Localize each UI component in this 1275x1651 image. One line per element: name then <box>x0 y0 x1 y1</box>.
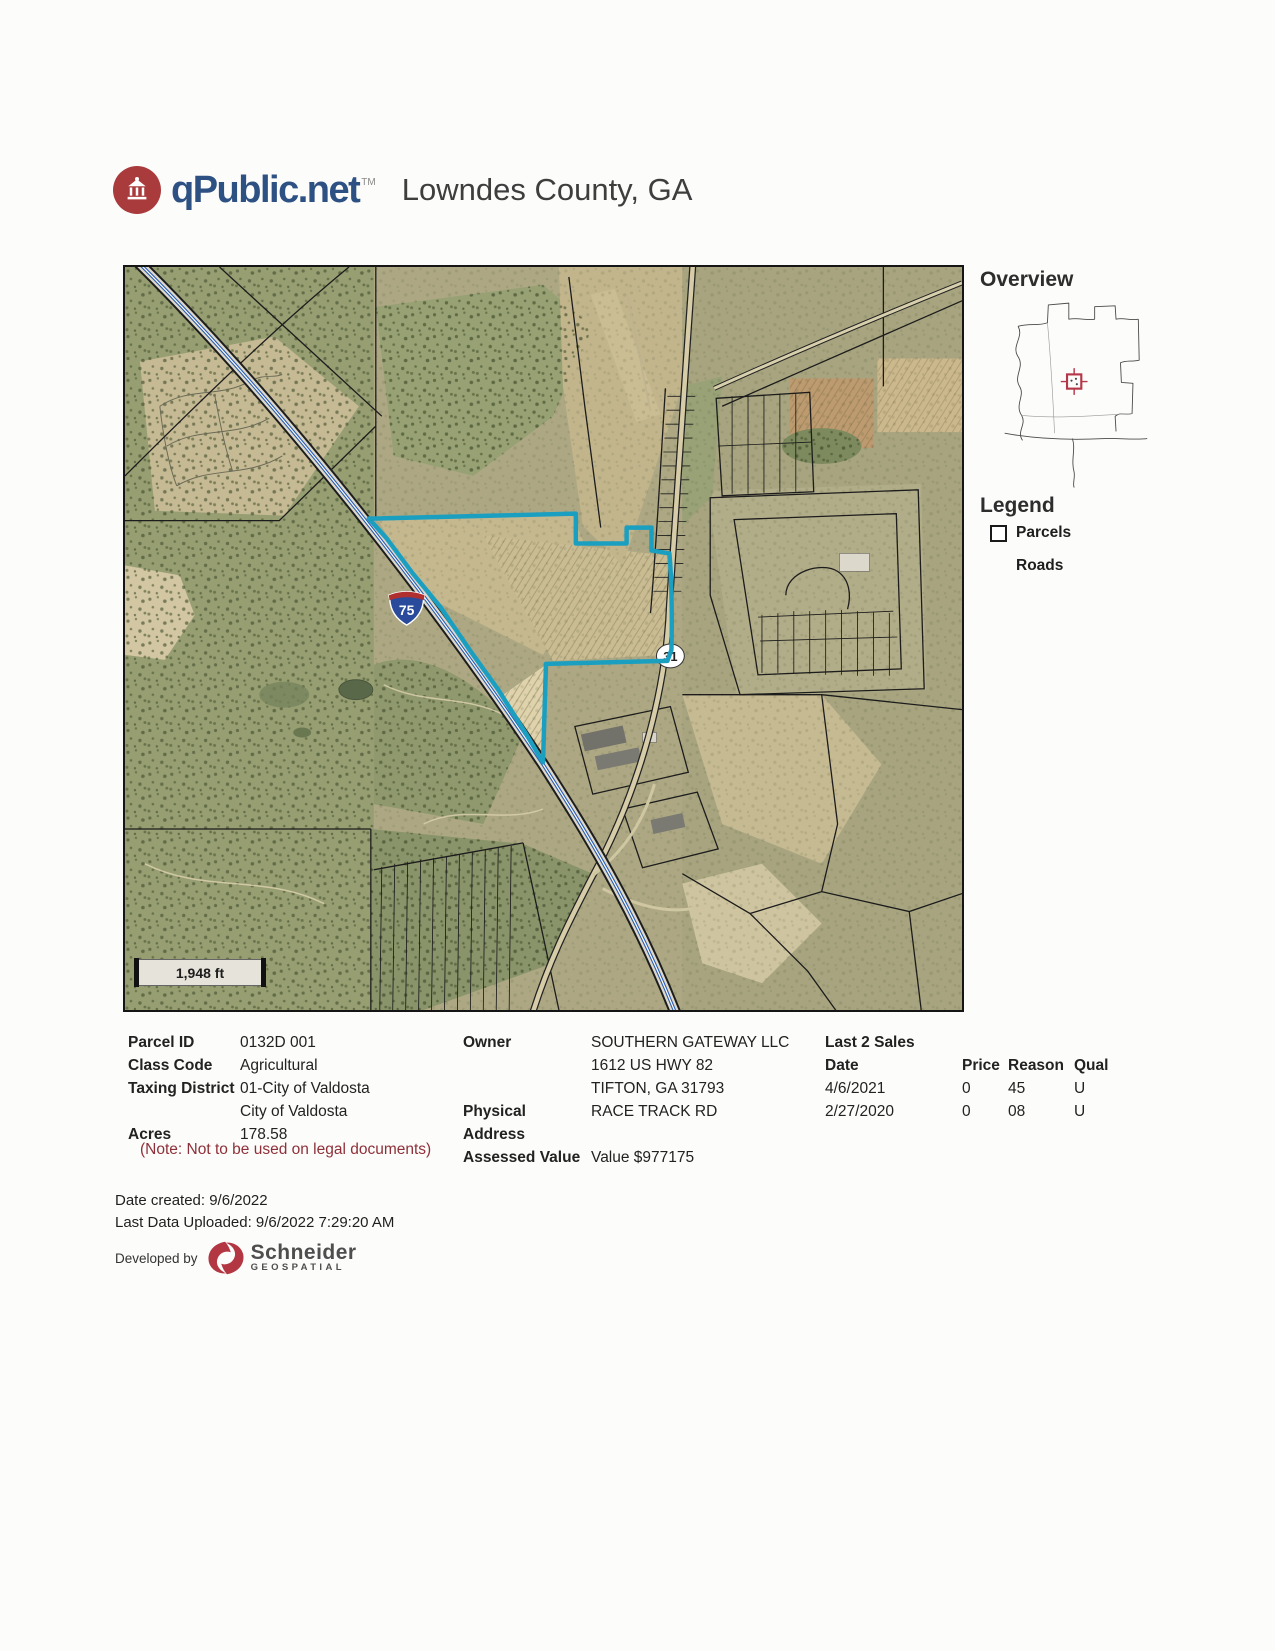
legend-roads-label: Roads <box>1016 557 1063 575</box>
sales-cell: 45 <box>1008 1077 1074 1100</box>
sales-row: 2/27/2020 0 08 U <box>825 1100 1118 1123</box>
brand-wordmark: qPublic.netTM <box>171 169 376 212</box>
trademark-symbol: TM <box>361 177 375 188</box>
qpublic-logo-icon <box>113 166 161 214</box>
parcel-aerial-map: 31 75 1,948 ft <box>123 265 964 1012</box>
field-label: Class Code <box>128 1054 240 1077</box>
detail-row: Physical AddressRACE TRACK RD <box>463 1100 789 1146</box>
sales-cell: U <box>1074 1077 1118 1100</box>
field-value: 1612 US HWY 82 <box>591 1054 713 1077</box>
parcel-summary-block: Parcel ID0132D 001 Class CodeAgricultura… <box>128 1031 370 1146</box>
detail-row: Taxing District01-City of Valdosta <box>128 1077 370 1100</box>
sales-header-qual: Qual <box>1074 1054 1118 1077</box>
field-label: Parcel ID <box>128 1031 240 1054</box>
field-value: City of Valdosta <box>240 1100 347 1123</box>
field-label: Owner <box>463 1031 591 1054</box>
sales-cell: 2/27/2020 <box>825 1100 962 1123</box>
last-data-uploaded: Last Data Uploaded: 9/6/2022 7:29:20 AM <box>115 1214 394 1231</box>
sales-header-date: Date <box>825 1054 962 1077</box>
field-label <box>128 1100 240 1123</box>
scale-label: 1,948 ft <box>176 965 224 981</box>
detail-row: OwnerSOUTHERN GATEWAY LLC <box>463 1031 789 1054</box>
field-value: Value $977175 <box>591 1146 694 1169</box>
field-label <box>463 1077 591 1100</box>
detail-row: Assessed ValueValue $977175 <box>463 1146 789 1169</box>
detail-row: City of Valdosta <box>128 1100 370 1123</box>
sales-cell: 4/6/2021 <box>825 1077 962 1100</box>
field-label <box>463 1054 591 1077</box>
detail-row: Parcel ID0132D 001 <box>128 1031 370 1054</box>
field-label: Assessed Value <box>463 1146 591 1169</box>
detail-row: Class CodeAgricultural <box>128 1054 370 1077</box>
field-value: RACE TRACK RD <box>591 1100 717 1146</box>
field-value: TIFTON, GA 31793 <box>591 1077 724 1100</box>
sales-header-row: Date Price Reason Qual <box>825 1054 1118 1077</box>
aerial-map-canvas: 31 75 <box>125 267 962 1010</box>
sales-cell: U <box>1074 1100 1118 1123</box>
schneider-swirl-icon <box>205 1240 247 1276</box>
parcel-square-icon <box>990 525 1007 542</box>
developer-credit: Developed by Schneider GEOSPATIAL <box>115 1240 357 1276</box>
schneider-wordmark: Schneider GEOSPATIAL <box>251 1243 357 1273</box>
field-value: Agricultural <box>240 1054 318 1077</box>
brand-text: qPublic.net <box>171 169 359 211</box>
sales-cell: 0 <box>962 1077 1008 1100</box>
report-header: qPublic.netTM Lowndes County, GA <box>113 166 692 214</box>
svg-text:75: 75 <box>399 602 415 618</box>
pond <box>339 680 373 700</box>
field-value: 01-City of Valdosta <box>240 1077 370 1100</box>
field-value: SOUTHERN GATEWAY LLC <box>591 1031 789 1054</box>
legend-item-parcels: Parcels <box>990 524 1071 542</box>
qpublic-parcel-report-page: qPublic.netTM Lowndes County, GA <box>0 0 1275 1651</box>
sales-title: Last 2 Sales <box>825 1031 1118 1054</box>
sales-cell: 0 <box>962 1100 1008 1123</box>
schneider-geospatial-label: GEOSPATIAL <box>251 1262 357 1273</box>
county-title: Lowndes County, GA <box>402 172 693 208</box>
legend-parcels-label: Parcels <box>1016 524 1071 542</box>
schneider-name: Schneider <box>251 1243 357 1262</box>
sales-header-price: Price <box>962 1054 1008 1077</box>
parcel-location-marker <box>1061 368 1088 395</box>
legal-note: (Note: Not to be used on legal documents… <box>140 1141 431 1159</box>
last-sales-block: Last 2 Sales Date Price Reason Qual 4/6/… <box>825 1031 1118 1123</box>
legend-item-roads: Roads <box>990 557 1063 575</box>
field-label: Physical Address <box>463 1100 591 1146</box>
courthouse-dome-icon <box>122 175 152 205</box>
date-created: Date created: 9/6/2022 <box>115 1192 268 1209</box>
detail-row: 1612 US HWY 82 <box>463 1054 789 1077</box>
field-label: Taxing District <box>128 1077 240 1100</box>
detail-row: TIFTON, GA 31793 <box>463 1077 789 1100</box>
map-scale-bar: 1,948 ft <box>134 959 266 986</box>
owner-block: OwnerSOUTHERN GATEWAY LLC 1612 US HWY 82… <box>463 1031 789 1169</box>
county-overview-map <box>978 296 1173 492</box>
developed-by-label: Developed by <box>115 1251 198 1266</box>
sales-cell: 08 <box>1008 1100 1074 1123</box>
sales-header-reason: Reason <box>1008 1054 1074 1077</box>
sales-row: 4/6/2021 0 45 U <box>825 1077 1118 1100</box>
overview-title: Overview <box>980 268 1073 292</box>
field-value: 0132D 001 <box>240 1031 316 1054</box>
legend-title: Legend <box>980 494 1055 518</box>
